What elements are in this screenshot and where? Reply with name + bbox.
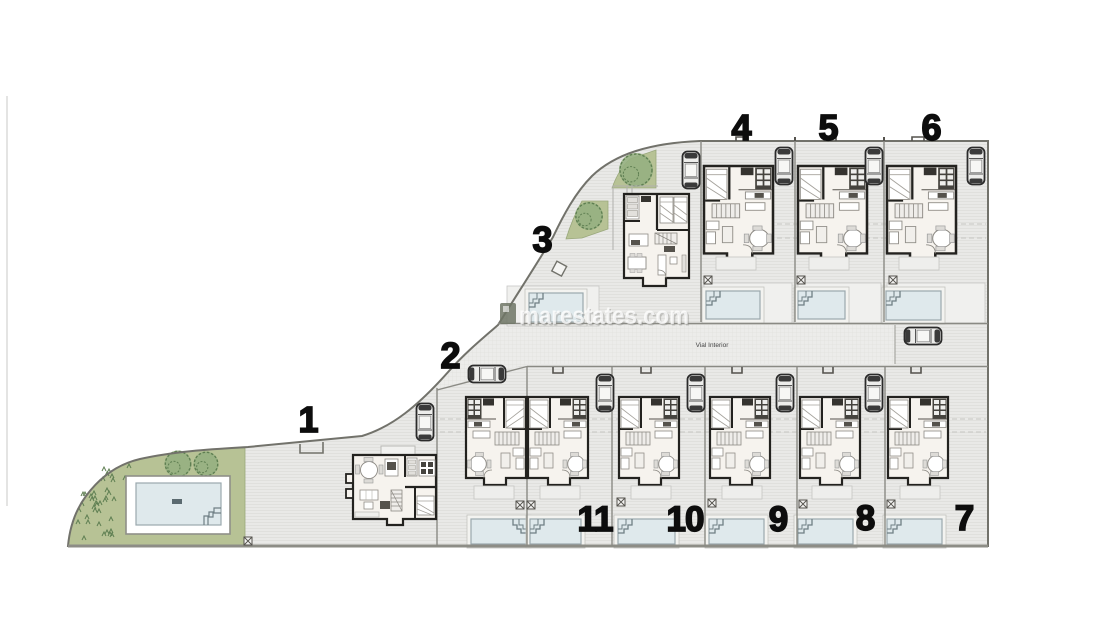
svg-text:3: 3 xyxy=(532,219,551,260)
svg-text:1: 1 xyxy=(298,399,318,440)
svg-text:9: 9 xyxy=(769,500,788,539)
svg-text:5: 5 xyxy=(818,107,838,148)
svg-text:2: 2 xyxy=(440,335,459,376)
svg-text:6: 6 xyxy=(921,107,940,148)
svg-text:4: 4 xyxy=(731,107,751,148)
svg-text:Vial Interior: Vial Interior xyxy=(696,342,730,349)
svg-text:7: 7 xyxy=(955,499,973,538)
svg-text:10: 10 xyxy=(667,500,704,539)
svg-text:8: 8 xyxy=(856,499,875,538)
svg-text:marestates.com: marestates.com xyxy=(519,302,689,330)
svg-text:11: 11 xyxy=(578,500,614,539)
